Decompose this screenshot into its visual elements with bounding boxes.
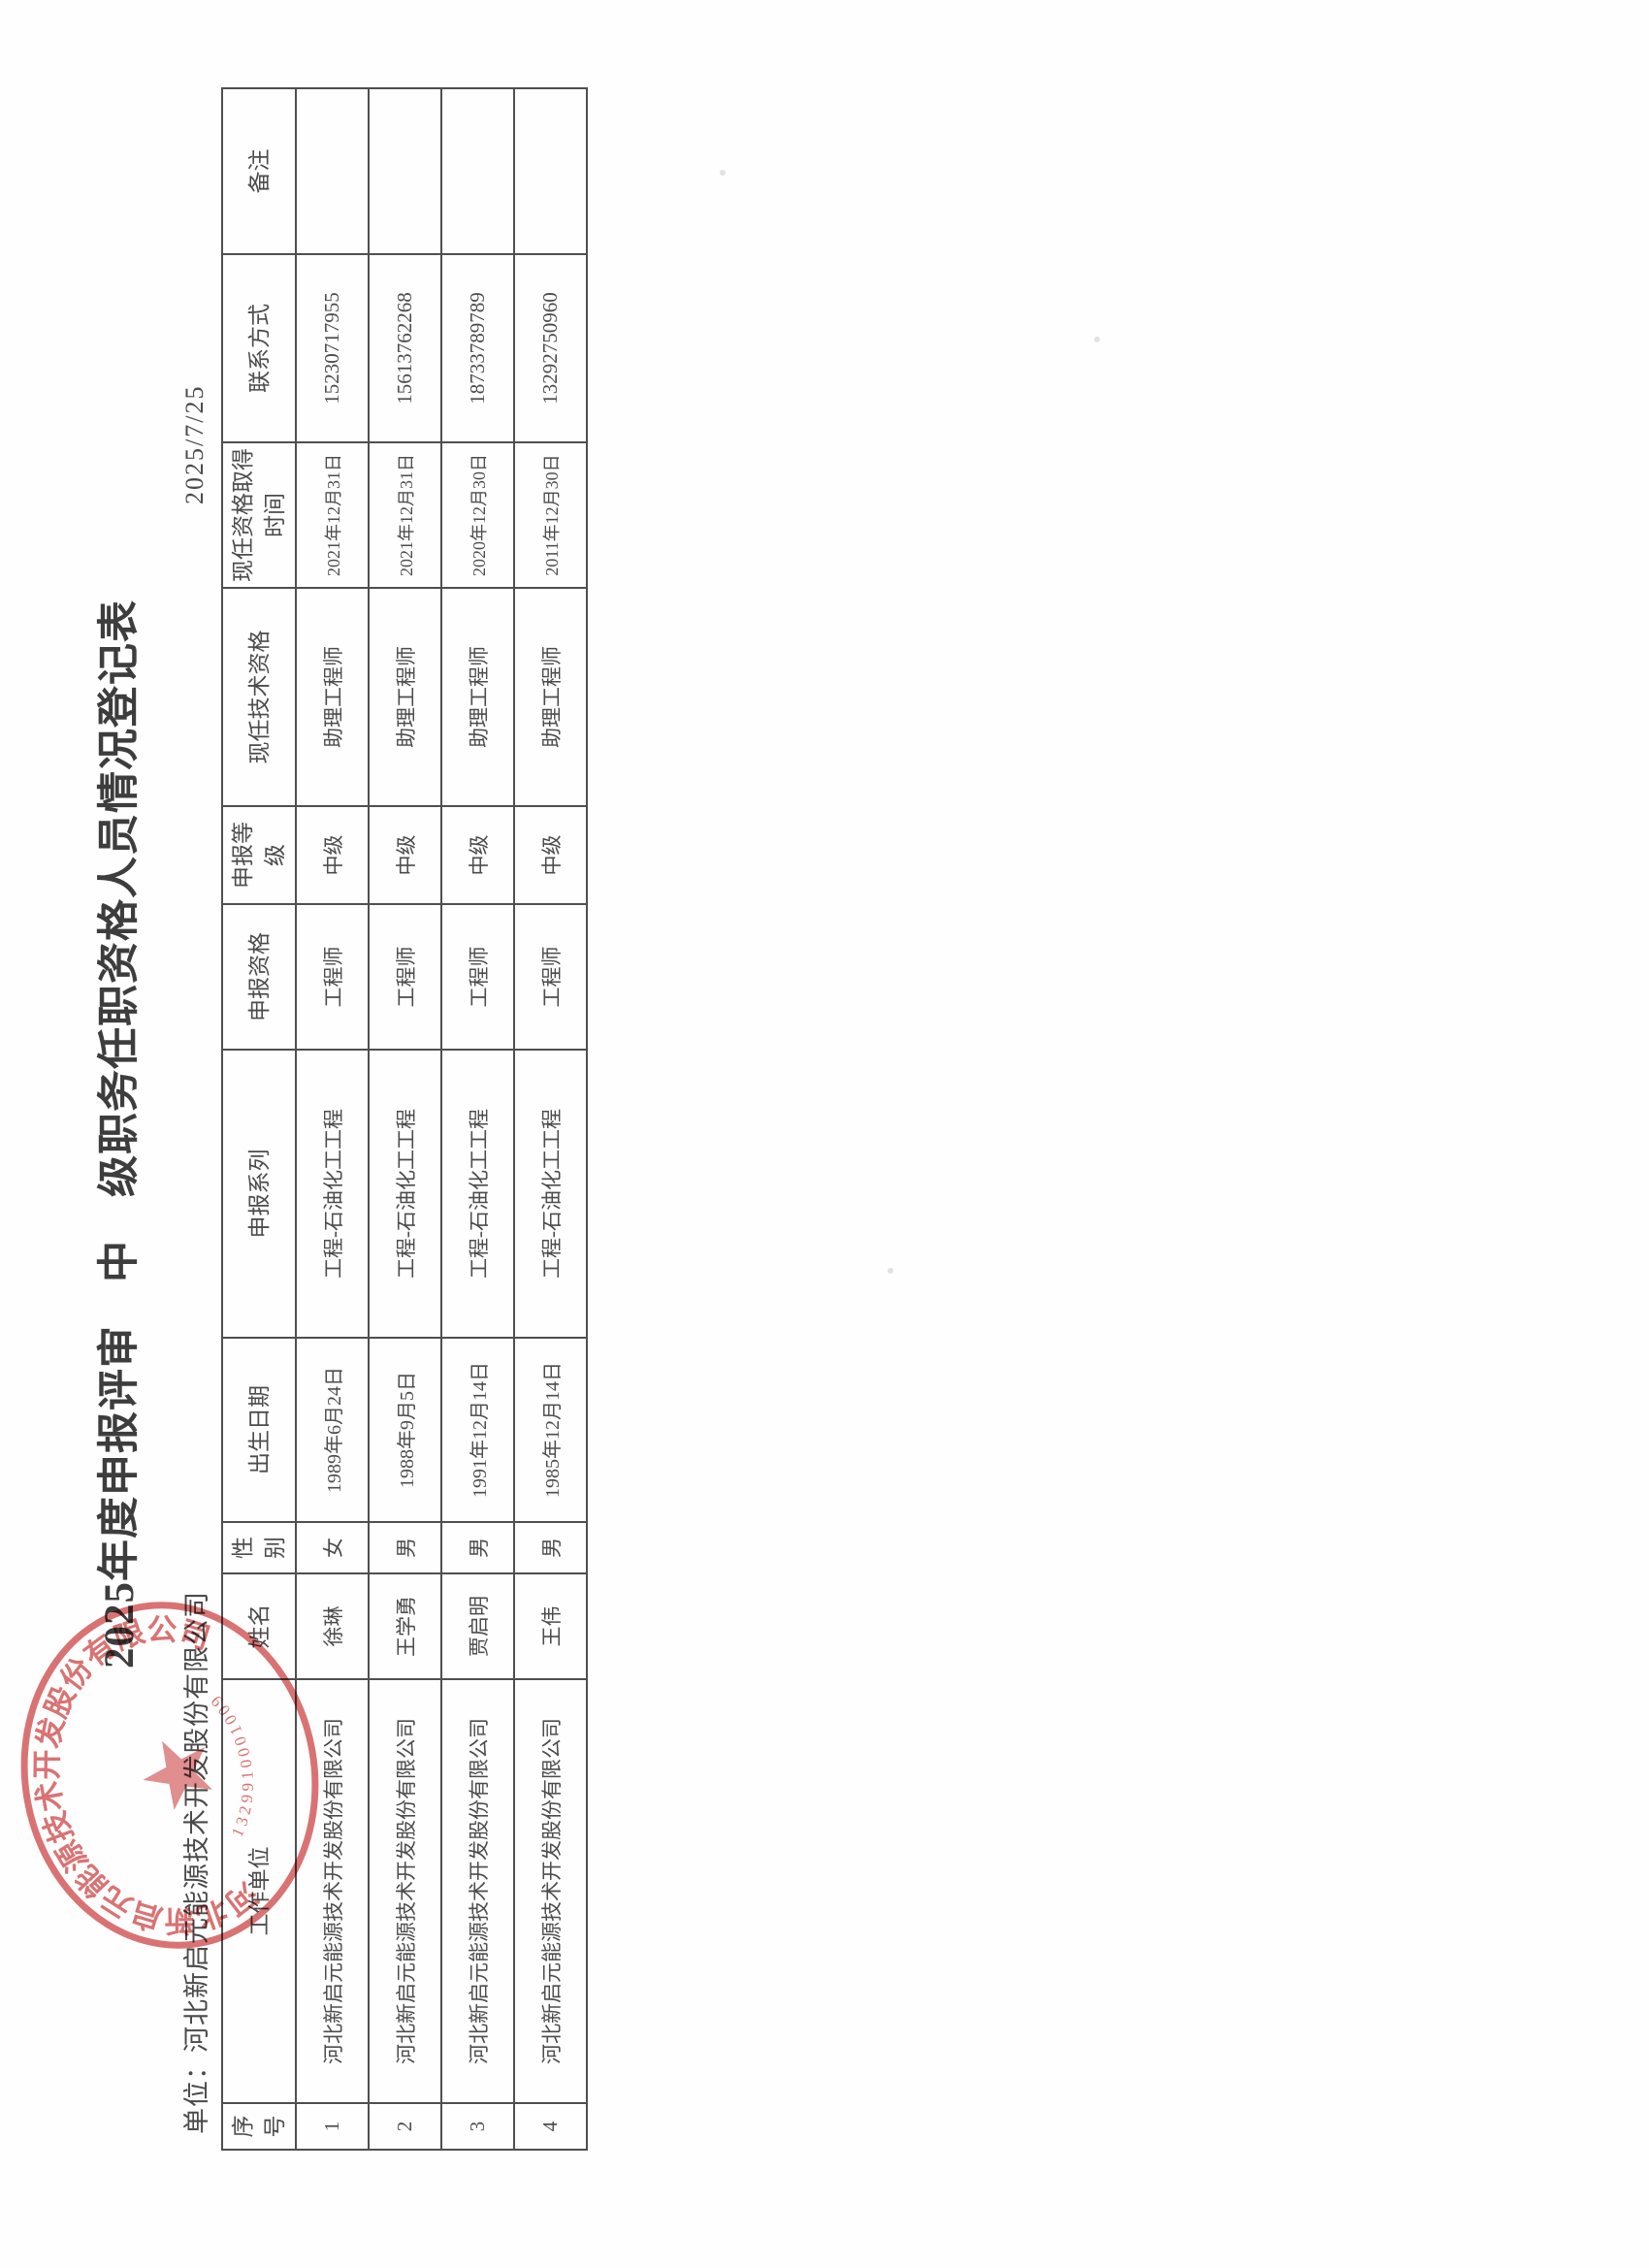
scan-speckle — [1094, 337, 1100, 342]
cell: 2021年12月31日 — [369, 442, 441, 588]
cell: 男 — [514, 1522, 587, 1573]
cell: 1988年9月5日 — [369, 1338, 441, 1522]
cell: 贾启明 — [441, 1573, 514, 1679]
cell: 工程师 — [369, 904, 441, 1050]
cell: 1985年12月14日 — [514, 1338, 587, 1522]
print-date: 2025/7/25 — [180, 385, 210, 504]
header-cell: 备注 — [222, 88, 296, 254]
table-row: 4 河北新启元能源技术开发股份有限公司 王伟 男 1985年12月14日 工程-… — [514, 88, 587, 2150]
scanned-page: 2025年度申报评审 中 级职务任职资格人员情况登记表 单位：河北新启元能源技术… — [0, 0, 1649, 2268]
cell: 4 — [514, 2103, 587, 2150]
cell: 助理工程师 — [296, 588, 369, 806]
header-cell: 现任资格取得时间 — [222, 442, 296, 588]
cell: 助理工程师 — [441, 588, 514, 806]
header-cell: 申报资格 — [222, 904, 296, 1050]
header-cell: 序号 — [222, 2103, 296, 2150]
scan-speckle — [888, 1268, 893, 1274]
cell — [441, 88, 514, 254]
header-cell: 性别 — [222, 1522, 296, 1573]
table-row: 2 河北新启元能源技术开发股份有限公司 王学勇 男 1988年9月5日 工程-石… — [369, 88, 441, 2150]
company-seal: 河北新启元能源技术开发股份有限公司 1329910001009 — [0, 1567, 355, 1984]
cell: 1 — [296, 2103, 369, 2150]
header-cell: 申报等级 — [222, 806, 296, 904]
cell: 2 — [369, 2103, 441, 2150]
cell: 中级 — [369, 806, 441, 904]
cell: 王伟 — [514, 1573, 587, 1679]
cell — [369, 88, 441, 254]
header-cell: 联系方式 — [222, 254, 296, 442]
seal-number-text: 1329910001009 — [203, 1685, 268, 1842]
cell: 工程师 — [296, 904, 369, 1050]
cell: 工程师 — [514, 904, 587, 1050]
cell — [514, 88, 587, 254]
cell: 男 — [369, 1522, 441, 1573]
cell: 18733789789 — [441, 254, 514, 442]
cell: 河北新启元能源技术开发股份有限公司 — [514, 1679, 587, 2103]
header-cell: 出生日期 — [222, 1338, 296, 1522]
document-sheet: 2025年度申报评审 中 级职务任职资格人员情况登记表 单位：河北新启元能源技术… — [0, 0, 1649, 2268]
header-cell: 申报系列 — [222, 1050, 296, 1338]
cell: 河北新启元能源技术开发股份有限公司 — [441, 1679, 514, 2103]
cell: 15230717955 — [296, 254, 369, 442]
seal-star-icon — [137, 1733, 214, 1814]
scan-speckle — [720, 170, 726, 176]
cell: 女 — [296, 1522, 369, 1573]
cell: 中级 — [296, 806, 369, 904]
cell: 助理工程师 — [514, 588, 587, 806]
cell: 工程-石油化工工程 — [514, 1050, 587, 1338]
cell: 15613762268 — [369, 254, 441, 442]
cell — [296, 88, 369, 254]
table-row: 3 河北新启元能源技术开发股份有限公司 贾启明 男 1991年12月14日 工程… — [441, 88, 514, 2150]
cell: 中级 — [514, 806, 587, 904]
cell: 工程-石油化工工程 — [441, 1050, 514, 1338]
header-cell: 现任技术资格 — [222, 588, 296, 806]
cell: 13292750960 — [514, 254, 587, 442]
cell: 1989年6月24日 — [296, 1338, 369, 1522]
cell: 助理工程师 — [369, 588, 441, 806]
cell: 男 — [441, 1522, 514, 1573]
cell: 河北新启元能源技术开发股份有限公司 — [369, 1679, 441, 2103]
cell: 1991年12月14日 — [441, 1338, 514, 1522]
cell: 2020年12月30日 — [441, 442, 514, 588]
cell: 王学勇 — [369, 1573, 441, 1679]
cell: 工程师 — [441, 904, 514, 1050]
cell: 工程-石油化工工程 — [296, 1050, 369, 1338]
cell: 工程-石油化工工程 — [369, 1050, 441, 1338]
cell: 2021年12月31日 — [296, 442, 369, 588]
seal-company-text: 河北新启元能源技术开发股份有限公司 — [5, 1602, 268, 1960]
cell: 中级 — [441, 806, 514, 904]
cell: 2011年12月30日 — [514, 442, 587, 588]
cell: 3 — [441, 2103, 514, 2150]
